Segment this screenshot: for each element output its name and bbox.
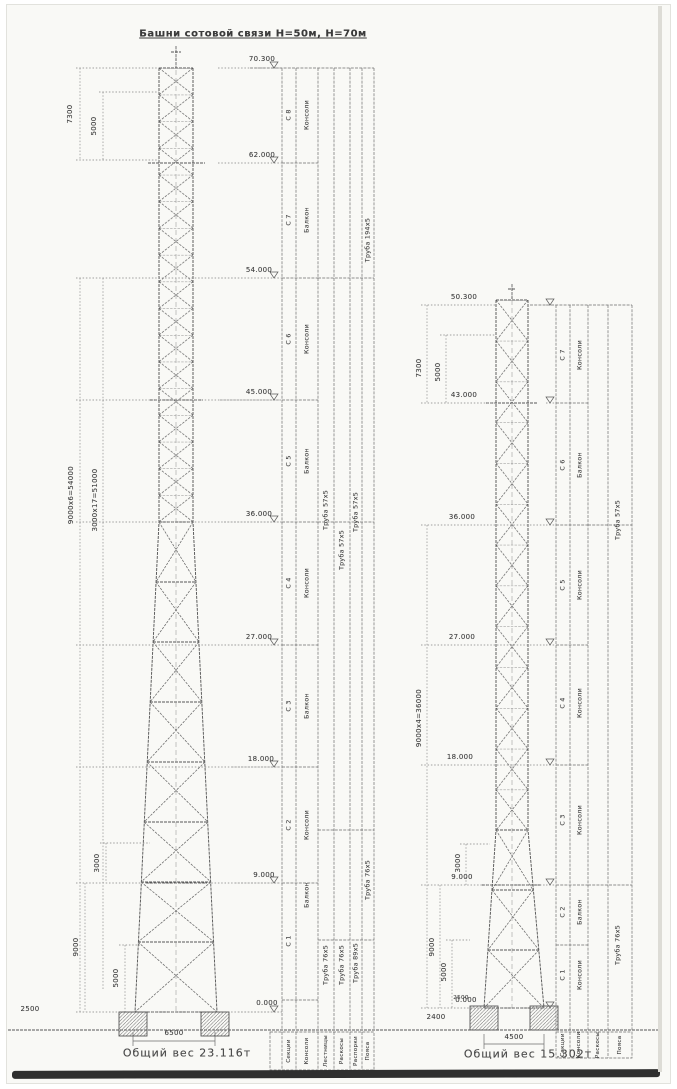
column-header: Секции — [286, 1039, 292, 1063]
column-header: Пояса — [365, 1042, 371, 1061]
column-header: Пояса — [617, 1036, 623, 1055]
dim-label-36000: 9000х4=36000 — [415, 689, 423, 747]
section-label: С 3 — [560, 814, 567, 825]
page-edge-shadow — [658, 6, 662, 1072]
dim-label-54000: 9000х6=54000 — [67, 466, 75, 524]
attachment-label: Консоли — [304, 100, 311, 130]
section-label: С 3 — [286, 700, 293, 711]
section-label: С 1 — [560, 969, 567, 980]
section-label: С 1 — [286, 935, 293, 946]
attachment-label: Балкон — [577, 899, 584, 925]
attachment-label: Консоли — [577, 570, 584, 600]
attachment-label: Консоли — [577, 688, 584, 718]
attachment-label: Консоли — [577, 805, 584, 835]
attachment-label: Балкон — [304, 207, 311, 233]
section-label: С 7 — [560, 349, 567, 360]
attachment-label: Консоли — [577, 960, 584, 990]
pipe-label: Труба 194х5 — [365, 218, 372, 262]
elevation-label: 50.300 — [451, 293, 477, 301]
dim-label-5000: 5000 — [434, 362, 442, 381]
dim-label-7300: 7300 — [415, 358, 423, 377]
elevation-label: 27.000 — [449, 633, 475, 641]
section-label: С 7 — [286, 214, 293, 225]
attachment-label: Балкон — [577, 452, 584, 478]
elevation-label: 45.000 — [246, 388, 272, 396]
pipe-label: Труба 57х5 — [353, 492, 360, 532]
pipe-label: Труба 89х5 — [353, 943, 360, 983]
section-label: С 6 — [560, 459, 567, 470]
column-header: Секции — [560, 1033, 566, 1057]
dim-label-51000: 3000х17=51000 — [91, 469, 99, 532]
elevation-label: 27.000 — [246, 633, 272, 641]
elevation-label: 9.000 — [253, 871, 275, 879]
pipe-label: Труба 76х5 — [615, 925, 622, 965]
weight-caption-right: Общий вес 15.302т — [464, 1048, 592, 1061]
pipe-label: Труба 57х5 — [323, 490, 330, 530]
elevation-label: 36.000 — [449, 513, 475, 521]
attachment-label: Балкон — [304, 882, 311, 908]
drawing-title: Башни сотовой связи Н=50м, Н=70м — [139, 29, 366, 40]
pipe-label: Труба 76х5 — [323, 945, 330, 985]
weight-caption-left: Общий вес 23.116т — [123, 1047, 251, 1060]
section-label: С 2 — [286, 819, 293, 830]
elevation-label: 9.000 — [451, 873, 473, 881]
dim-label-2400: 2400 — [426, 1013, 445, 1021]
section-label: С 2 — [560, 906, 567, 917]
column-header: Распорки — [353, 1036, 359, 1066]
elevation-label: 62.000 — [249, 151, 275, 159]
attachment-label: Консоли — [304, 568, 311, 598]
pipe-label: Труба 76х5 — [365, 860, 372, 900]
section-label: С 5 — [286, 455, 293, 466]
elevation-label: 54.000 — [246, 266, 272, 274]
column-header: Раскосы — [339, 1038, 345, 1064]
dim-label-4500: 4500 — [504, 1033, 523, 1041]
section-label: С 6 — [286, 333, 293, 344]
elevation-label: 0.000 — [256, 999, 278, 1007]
section-label: С 4 — [560, 697, 567, 708]
dim-label-7300: 7300 — [66, 104, 74, 123]
scan-edge — [12, 1069, 660, 1079]
column-header: Раскосы — [595, 1032, 601, 1058]
pipe-label: Труба 57х5 — [615, 500, 622, 540]
column-header: Консоли — [304, 1038, 310, 1065]
dim-label-5000-low: 5000 — [112, 968, 120, 987]
dim-label-6500: 6500 — [164, 1029, 183, 1037]
dim-label-9000: 9000 — [428, 937, 436, 956]
elevation-label: 18.000 — [447, 753, 473, 761]
dim-label-3000: 3000 — [93, 853, 101, 872]
attachment-label: Консоли — [577, 340, 584, 370]
column-header: Лестницы — [323, 1035, 329, 1067]
pipe-label: Труба 76х5 — [339, 945, 346, 985]
attachment-label: Балкон — [304, 448, 311, 474]
elevation-label: 70.300 — [249, 55, 275, 63]
elevation-label: 43.000 — [451, 391, 477, 399]
dim-label-5000-low: 5000 — [440, 962, 448, 981]
attachment-label: Балкон — [304, 693, 311, 719]
elevation-label: 18.000 — [248, 755, 274, 763]
dim-label-2500: 2500 — [20, 1005, 39, 1013]
dim-label-3000: 3000 — [454, 853, 462, 872]
dim-label-9000: 9000 — [72, 937, 80, 956]
section-label: С 8 — [286, 109, 293, 120]
elevation-label: 36.000 — [246, 510, 272, 518]
pipe-label: Труба 57х5 — [339, 530, 346, 570]
dim-label-2500: 2500 — [453, 995, 468, 1001]
attachment-label: Консоли — [304, 324, 311, 354]
section-label: С 4 — [286, 577, 293, 588]
section-label: С 5 — [560, 579, 567, 590]
attachment-label: Консоли — [304, 810, 311, 840]
scanned-drawing-sheet: Башни сотовой связи Н=50м, Н=70м 70.300 … — [0, 0, 677, 1089]
column-header: Консоли — [576, 1032, 582, 1059]
dim-label-5000: 5000 — [90, 116, 98, 135]
